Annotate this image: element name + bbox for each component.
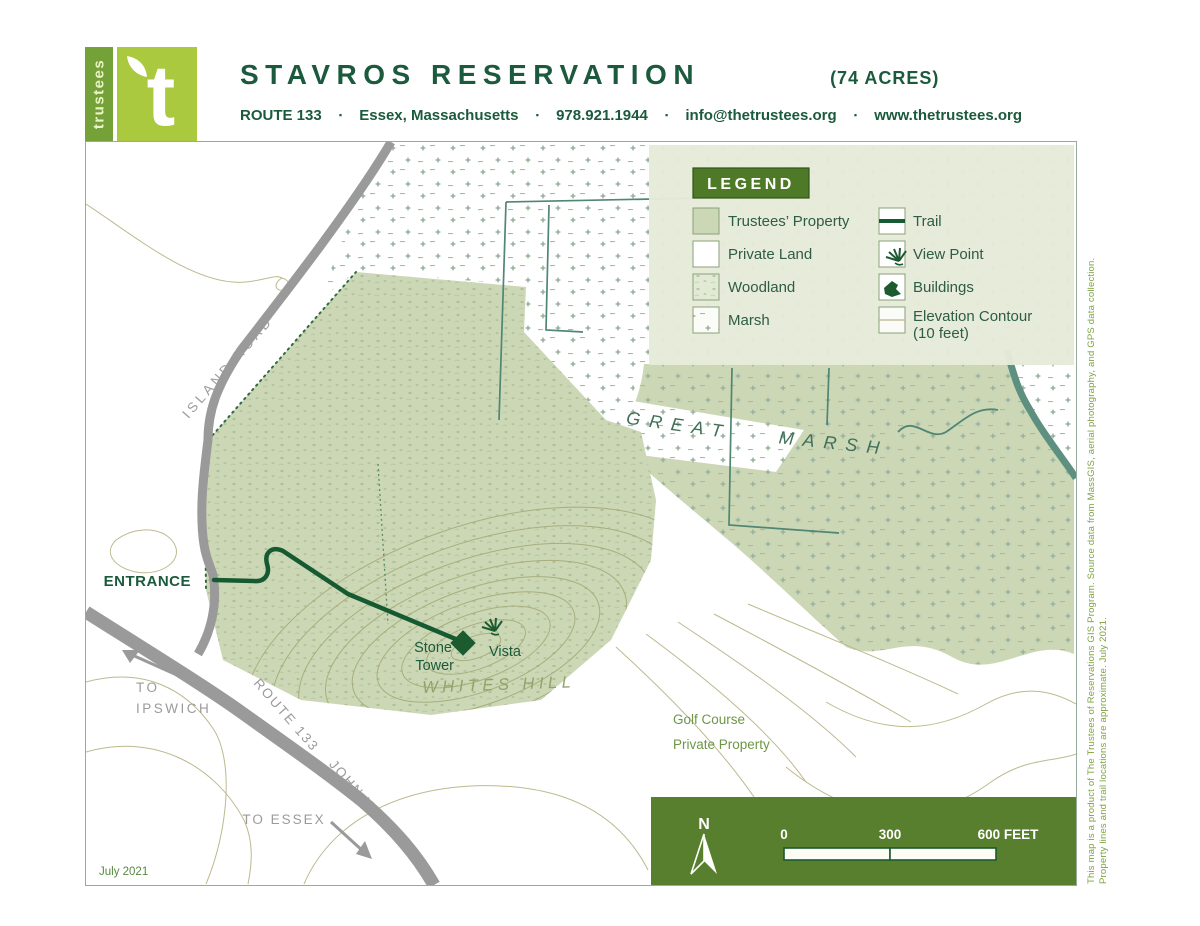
- map-date-label: July 2021: [99, 866, 148, 878]
- swatch-woodland: [693, 274, 719, 300]
- legend-item-trustees-property: Trustees’ Property: [728, 213, 850, 230]
- legend-panel: LEGEND Trustees’ Property Private Land W…: [649, 145, 1074, 365]
- north-label: N: [698, 816, 710, 833]
- scale-tick-0: 0: [780, 827, 788, 842]
- swatch-private-land: [693, 241, 719, 267]
- vista-label: Vista: [489, 644, 522, 660]
- scale-bar: [784, 848, 996, 860]
- map-credits-line1: This map is a product of The Trustees of…: [1086, 141, 1098, 884]
- swatch-marsh: [693, 307, 719, 333]
- to-essex-label: TO ESSEX: [242, 812, 325, 827]
- legend-title: LEGEND: [707, 176, 795, 193]
- logo-vertical-text: trustees: [91, 59, 108, 129]
- contact-website: www.thetrustees.org: [874, 107, 1022, 124]
- bullet-separator: ▪: [536, 110, 539, 120]
- map-credits-line2: Property lines and trail locations are a…: [1098, 141, 1110, 884]
- bullet-separator: ▪: [854, 110, 857, 120]
- trustees-logo: trustees t: [85, 47, 197, 141]
- bullet-separator: ▪: [665, 110, 668, 120]
- legend-item-marsh: Marsh: [728, 312, 770, 329]
- scale-tick-300: 300: [879, 827, 902, 842]
- map-panel: ISLAND ROAD GREAT MARSH ENTRANCE Stone T…: [85, 141, 1077, 886]
- legend-item-elevation-note: (10 feet): [913, 325, 969, 342]
- legend-item-woodland: Woodland: [728, 279, 795, 296]
- golf-course-label: Golf Course: [673, 712, 745, 727]
- svg-text:t: t: [147, 48, 176, 141]
- legend-item-private-land: Private Land: [728, 246, 812, 263]
- stone-label: Stone: [414, 640, 452, 656]
- swatch-trail: [879, 208, 905, 234]
- header-text: STAVROS RESERVATION (74 ACRES) ROUTE 133…: [240, 47, 1022, 124]
- contact-email: info@thetrustees.org: [685, 107, 836, 124]
- to-ipswich-label-line2: IPSWICH: [136, 701, 211, 716]
- to-ipswich-label-line1: TO: [136, 680, 160, 695]
- buildings-legend-icon: [879, 274, 905, 300]
- swatch-trustees-property: [693, 208, 719, 234]
- logo-square: t: [117, 47, 197, 141]
- scale-tick-600: 600 FEET: [978, 827, 1040, 842]
- map-svg: ISLAND ROAD GREAT MARSH ENTRANCE Stone T…: [86, 142, 1076, 885]
- tower-label: Tower: [415, 658, 454, 674]
- contact-row: ROUTE 133 ▪ Essex, Massachusetts ▪ 978.9…: [240, 107, 1022, 124]
- logo-vertical-strip: trustees: [85, 47, 113, 141]
- contact-phone: 978.921.1944: [556, 107, 648, 124]
- acreage-label: (74 ACRES): [830, 68, 939, 89]
- bullet-separator: ▪: [339, 110, 342, 120]
- entrance-label: ENTRANCE: [104, 573, 191, 590]
- private-property-label: Private Property: [673, 737, 770, 752]
- page-title: STAVROS RESERVATION: [240, 59, 700, 91]
- contact-address: ROUTE 133: [240, 107, 322, 124]
- swatch-elevation-contour: [879, 307, 905, 333]
- legend-item-trail: Trail: [913, 213, 942, 230]
- page: { "header": { "logo": { "vertical_text":…: [0, 0, 1200, 926]
- legend-item-view-point: View Point: [913, 246, 984, 263]
- legend-item-buildings: Buildings: [913, 279, 974, 296]
- scale-panel: N 0 300 600 FEET: [651, 797, 1076, 885]
- header: trustees t STAVROS RESERVATION (74 ACRES…: [85, 47, 1022, 141]
- legend-item-elevation-contour: Elevation Contour: [913, 308, 1032, 325]
- map-credits: This map is a product of The Trustees of…: [1086, 141, 1109, 884]
- viewpoint-legend-icon: [879, 241, 906, 267]
- logo-t-icon: t: [117, 47, 197, 141]
- contact-city: Essex, Massachusetts: [359, 107, 518, 124]
